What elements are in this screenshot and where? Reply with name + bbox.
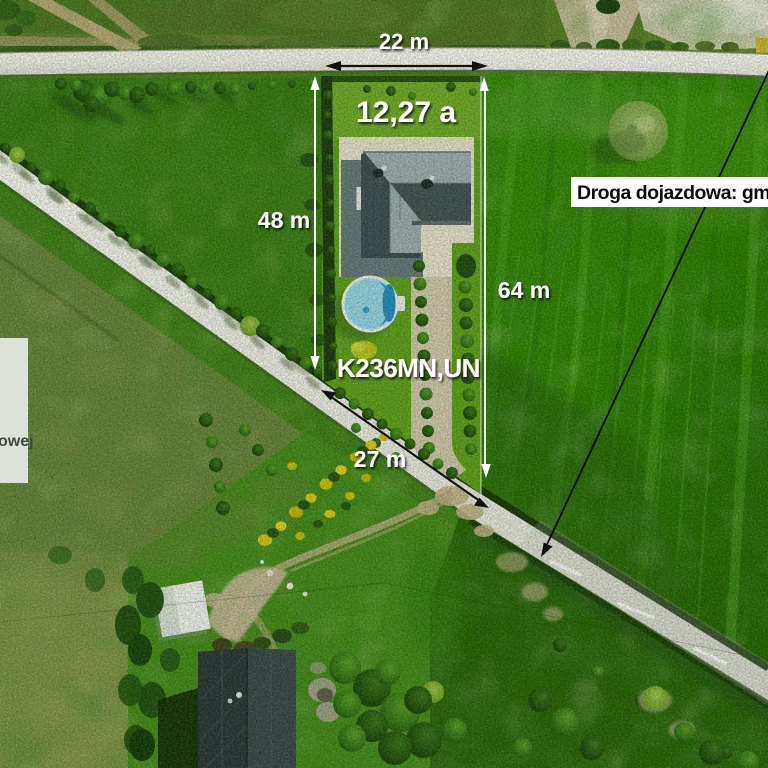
svg-text:48 m: 48 m bbox=[258, 207, 310, 233]
svg-text:22 m: 22 m bbox=[379, 29, 429, 54]
svg-text:12,27 a: 12,27 a bbox=[356, 96, 456, 129]
svg-text:K236MN,UN: K236MN,UN bbox=[337, 353, 480, 383]
svg-text:64 m: 64 m bbox=[498, 277, 550, 303]
svg-text:27 m: 27 m bbox=[354, 446, 406, 472]
svg-text:owej: owej bbox=[0, 433, 34, 450]
svg-text:Droga dojazdowa: gminna: Droga dojazdowa: gminna bbox=[577, 182, 768, 204]
